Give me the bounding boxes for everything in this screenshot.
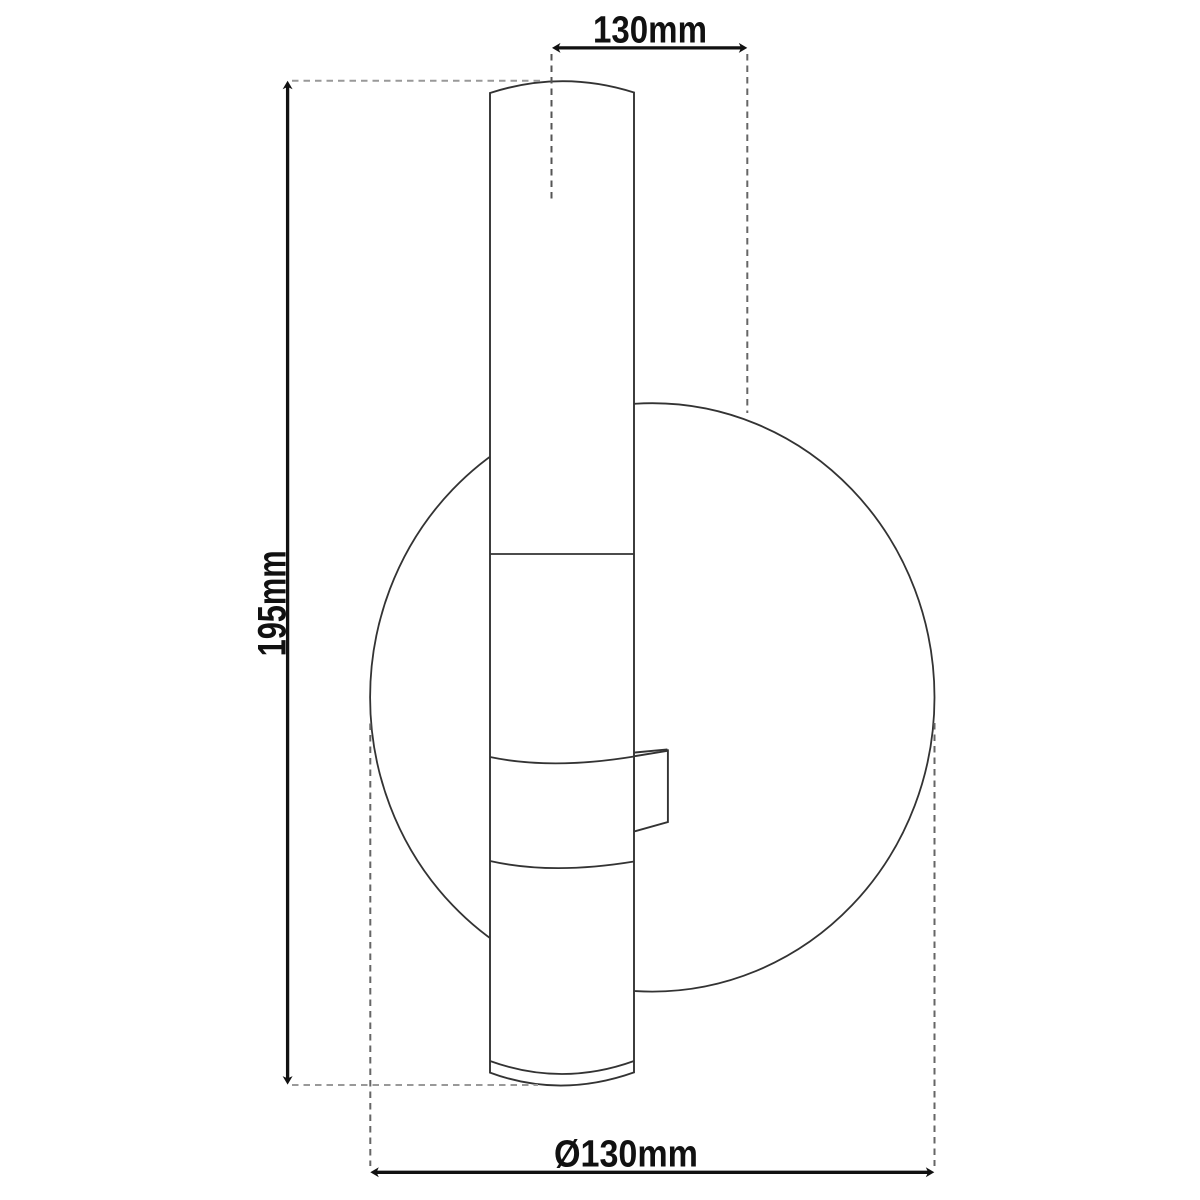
svg-text:195mm: 195mm (251, 550, 295, 656)
svg-text:Ø130mm: Ø130mm (554, 1134, 698, 1176)
svg-text:130mm: 130mm (593, 10, 707, 52)
